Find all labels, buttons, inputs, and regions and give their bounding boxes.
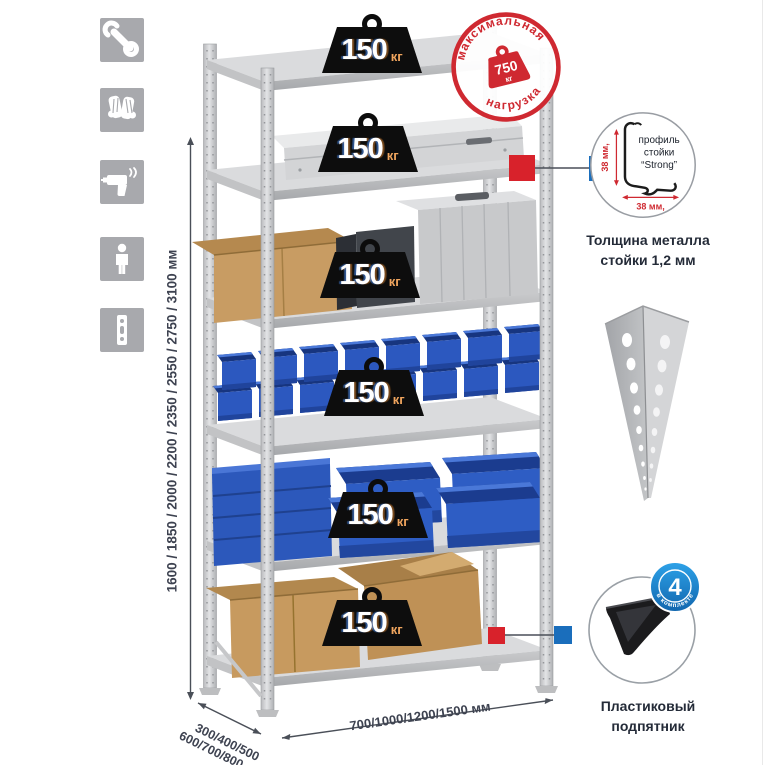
weight-value: 150 [343, 377, 388, 410]
post-profile-detail: 38 мм, 38 мм, профиль стойки “Strong” [587, 110, 699, 222]
height-options-label: 1600 / 1850 / 2000 / 2200 / 2350 / 2550 … [165, 250, 180, 593]
wrench-icon [100, 18, 144, 62]
person-icon-tile [100, 237, 144, 281]
gloves-icon-tile [100, 88, 144, 132]
profile-dim-vertical-label: 38 мм, [600, 143, 610, 171]
weight-value: 150 [347, 499, 392, 532]
weight-unit: кг [391, 622, 403, 637]
weight-badge-shelf-2: 150кг [318, 126, 418, 172]
weight-value: 150 [341, 607, 386, 640]
profile-label-3: “Strong” [641, 160, 677, 171]
weight-value: 150 [341, 34, 386, 67]
drill-icon [100, 160, 144, 204]
weight-badge-shelf-6: 150кг [322, 600, 422, 646]
weight-unit: кг [387, 148, 399, 163]
product-infographic: 150кг 150кг 150кг 150кг 150кг 150кг макс… [0, 0, 765, 765]
weight-badge-shelf-5: 150кг [328, 492, 428, 538]
gloves-icon [100, 88, 144, 132]
profile-caption: Толщина металла стойки 1,2 мм [568, 230, 728, 271]
weight-badge-shelf-3: 150кг [320, 252, 420, 298]
profile-label-2: стойки [644, 148, 674, 159]
angle-post-picture [593, 298, 703, 516]
badge-value: 4 [668, 574, 682, 601]
assembly-tools-icon-tile [100, 18, 144, 62]
weight-unit: кг [389, 274, 401, 289]
rack-post-icon [100, 308, 144, 352]
weight-value: 150 [337, 133, 382, 166]
profile-caption-line2: стойки 1,2 мм [568, 250, 728, 270]
weight-unit: кг [397, 514, 409, 529]
callout-marker-bottom [488, 626, 572, 644]
profile-caption-line1: Толщина металла [568, 230, 728, 250]
included-count-badge: 4 в комплекте [648, 560, 702, 614]
profile-label-1: профиль [639, 135, 680, 146]
drill-icon-tile [100, 160, 144, 204]
foot-caption-line2: подпятник [568, 716, 728, 736]
rack-post-icon-tile [100, 308, 144, 352]
weight-value: 150 [339, 259, 384, 292]
height-dimension-line [187, 137, 194, 700]
person-icon [100, 237, 144, 281]
weight-badge-shelf-4: 150кг [324, 370, 424, 416]
foot-caption-line1: Пластиковый [568, 696, 728, 716]
foot-caption: Пластиковый подпятник [568, 696, 728, 737]
profile-dim-horizontal-label: 38 мм, [636, 202, 664, 212]
weight-unit: кг [393, 392, 405, 407]
back-left-post [199, 44, 221, 695]
weight-unit: кг [391, 49, 403, 64]
weight-badge-shelf-1: 150кг [322, 27, 422, 73]
